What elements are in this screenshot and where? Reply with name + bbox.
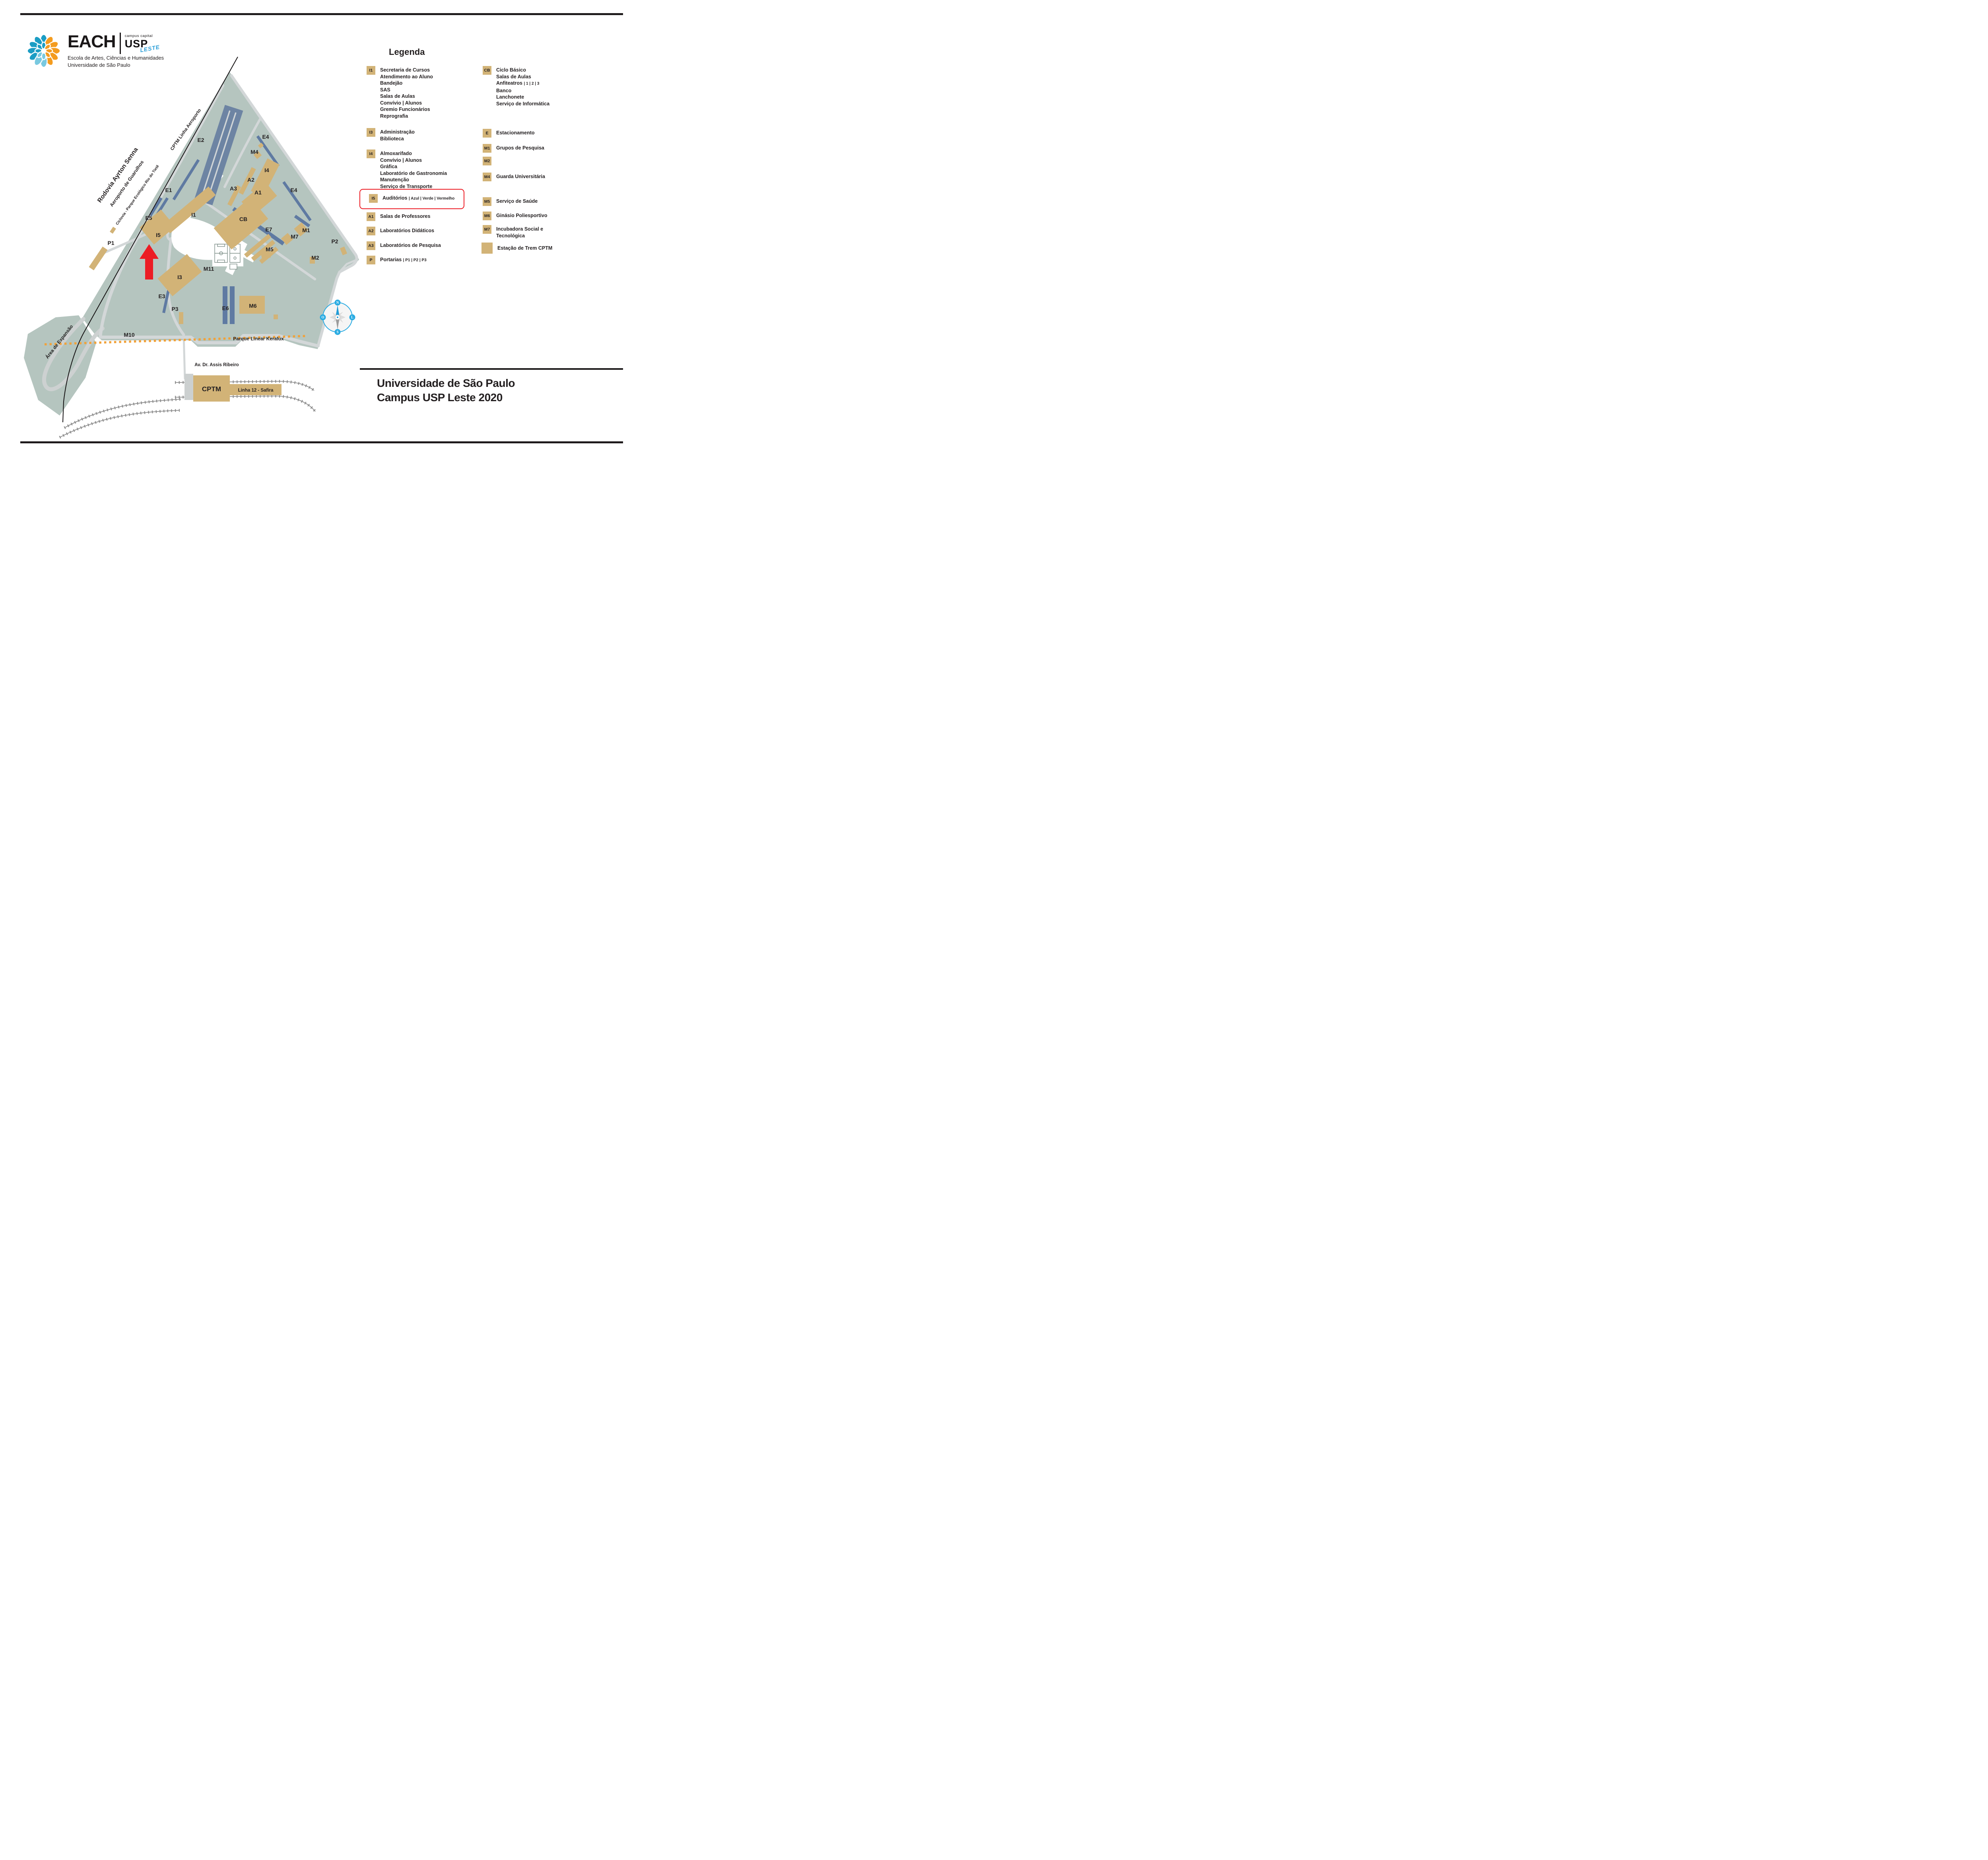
svg-text:M11: M11 [204, 266, 214, 272]
legend-swatch-i3: I3 [367, 128, 375, 137]
svg-text:M2: M2 [311, 254, 319, 261]
svg-text:S: S [336, 330, 338, 334]
legend-swatch-cb: CB [483, 66, 491, 75]
building-p3 [179, 312, 183, 324]
svg-text:E1: E1 [165, 187, 172, 193]
svg-text:M6: M6 [249, 303, 257, 309]
legend-swatch-p: P [367, 256, 375, 264]
svg-text:A2: A2 [247, 177, 254, 183]
svg-text:I3: I3 [177, 274, 182, 280]
legend-swatch-m4: M4 [483, 173, 491, 181]
legend-swatch-m6: M6 [483, 212, 491, 220]
svg-text:A1: A1 [254, 189, 262, 196]
svg-text:M1: M1 [302, 227, 310, 233]
building-p1 [89, 247, 107, 270]
svg-text:M4: M4 [250, 149, 258, 155]
svg-text:L: L [351, 315, 353, 319]
title-rule [360, 368, 623, 370]
legend-swatch-m7: M7 [483, 225, 491, 234]
legend-swatch-i1: I1 [367, 66, 375, 75]
svg-text:Parque Linear Keralux: Parque Linear Keralux [233, 336, 284, 342]
svg-text:P3: P3 [171, 306, 178, 312]
svg-text:Av. Dr. Assis Ribeiro: Av. Dr. Assis Ribeiro [194, 363, 239, 367]
cptm-line-label: Linha 12 - Safira [238, 388, 274, 393]
legend-swatch-e: E [483, 129, 491, 138]
svg-text:E3: E3 [158, 293, 165, 299]
building-p1-annex [110, 227, 116, 233]
svg-text:I1: I1 [191, 212, 196, 218]
legend-swatch-m1: M1 [483, 144, 491, 153]
campus-map-page: EACHcampus capital USP LESTE Escola de A… [0, 0, 658, 465]
svg-text:E5: E5 [145, 215, 152, 221]
svg-text:E7: E7 [265, 226, 272, 233]
svg-text:I4: I4 [264, 167, 269, 173]
legend-swatch-i4: I4 [367, 149, 375, 158]
legend-swatch-m2: M2 [483, 157, 491, 165]
svg-text:E2: E2 [197, 137, 204, 143]
svg-text:M10: M10 [124, 332, 134, 338]
svg-text:P2: P2 [331, 238, 338, 245]
svg-text:A3: A3 [230, 185, 237, 192]
legend-swatch-m5: M5 [483, 197, 491, 206]
svg-text:M5: M5 [266, 246, 274, 252]
map-title-line1: Universidade de São Paulo [377, 377, 515, 390]
legend-swatch-i5: I5 [369, 194, 378, 203]
svg-text:P1: P1 [107, 240, 114, 246]
legend-swatch-a1: A1 [367, 212, 375, 221]
svg-text:N: N [336, 301, 339, 305]
svg-text:E4: E4 [262, 134, 269, 140]
cptm-station-label: CPTM [202, 385, 221, 393]
station-platform [184, 374, 193, 400]
svg-text:O: O [321, 315, 324, 319]
legend-swatch-cptm [481, 243, 493, 254]
svg-text:M7: M7 [291, 233, 299, 240]
legend-swatch-a2: A2 [367, 227, 375, 235]
legend-title: Legenda [389, 47, 425, 57]
legend-swatch-a3: A3 [367, 241, 375, 250]
svg-text:E6: E6 [222, 305, 229, 311]
map-title-line2: Campus USP Leste 2020 [377, 391, 503, 404]
svg-text:I5: I5 [156, 232, 161, 238]
building-small [274, 315, 278, 319]
svg-text:E4: E4 [290, 187, 297, 193]
svg-text:CB: CB [239, 216, 247, 222]
